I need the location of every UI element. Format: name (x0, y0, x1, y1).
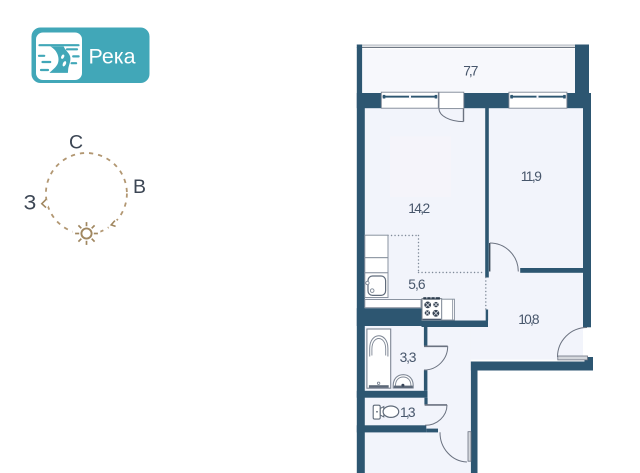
svg-text:В: В (133, 176, 146, 198)
svg-text:1,3: 1,3 (400, 405, 416, 420)
svg-text:З: З (24, 192, 37, 215)
svg-text:3,3: 3,3 (400, 350, 417, 365)
svg-text:11,9: 11,9 (521, 169, 543, 184)
svg-text:14,2: 14,2 (408, 201, 430, 216)
svg-text:С: С (69, 132, 83, 154)
svg-text:Река: Река (89, 45, 136, 68)
svg-text:7,7: 7,7 (463, 64, 478, 79)
svg-text:5,6: 5,6 (408, 277, 426, 292)
svg-text:10,8: 10,8 (518, 312, 540, 327)
